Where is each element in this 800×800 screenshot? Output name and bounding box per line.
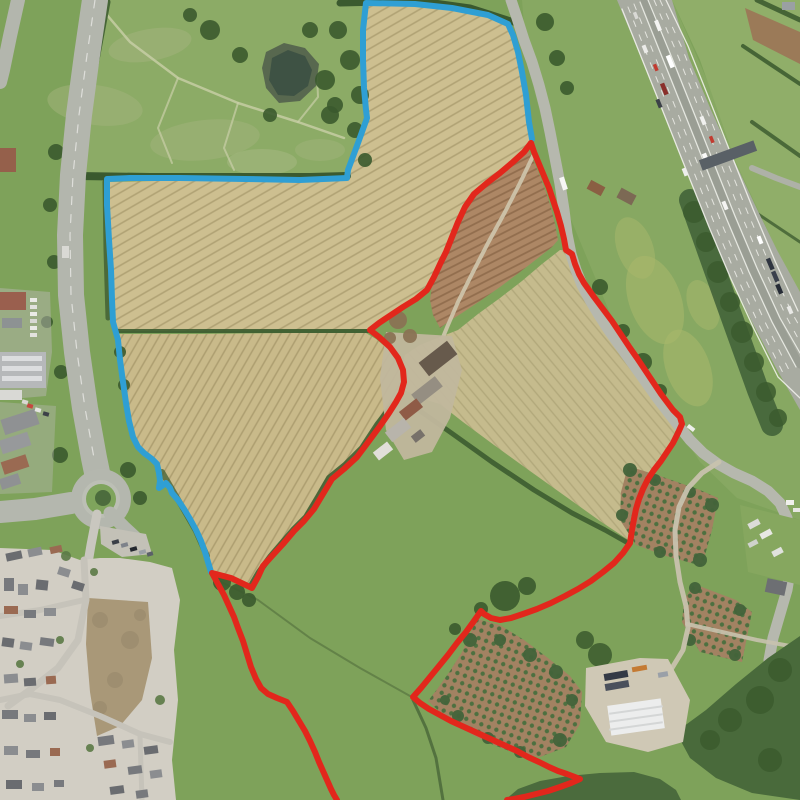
woodland-canopy [768,658,792,682]
commercial-parked-cars [30,312,37,316]
woodland-canopy [576,631,594,649]
tree-clump [183,8,197,22]
woodland-canopy [700,730,720,750]
woodland-canopy [718,708,742,732]
cleared-ground-mottle [121,631,139,649]
orchard-edge-trees [689,582,701,594]
house [4,578,14,591]
commercial-building [0,148,16,172]
orchard-edge-trees [705,498,719,512]
house [24,678,37,687]
tree-clump [242,593,256,607]
commercial-parked-cars [30,326,37,330]
estate-tree [61,551,71,561]
house [24,610,36,618]
house [104,759,117,769]
motorway-tree-canopy [769,409,787,427]
tree-clump [54,365,68,379]
orchard-edge-trees [729,649,741,661]
house [44,712,56,720]
roundabout-arm-west [0,503,71,512]
tree-clump [340,50,360,70]
crossing-refuge [62,246,69,258]
woodland-canopy [746,686,774,714]
commercial-building [2,318,22,328]
cleared-ground-mottle [107,672,123,688]
muck-heap [403,329,417,343]
commercial-roof-stripe [2,366,42,371]
house [4,674,19,684]
tree-clump [120,462,136,478]
park-light-patch [227,149,297,175]
house [44,608,56,616]
house [18,584,28,595]
house [4,606,18,614]
house [20,641,33,651]
house [4,746,18,755]
roundabout-bush [95,490,111,506]
cleared-ground-mottle [134,609,146,621]
orchard-edge-trees [734,604,746,616]
house [50,748,60,756]
commercial-parked-cars [30,305,37,309]
greenhouse [786,500,794,505]
house [122,739,135,749]
orchard-edge-trees [693,553,707,567]
tree-clump [200,20,220,40]
park-light-patch [295,139,345,161]
commercial-parked-cars [30,333,37,337]
tree-clump [43,198,57,212]
estate-tree [86,744,94,752]
house [54,780,64,787]
commercial-roof-stripe [2,376,42,381]
building-top-right [782,2,795,10]
house [24,714,36,722]
screenshot-root [0,0,800,800]
tree-clump [358,153,372,167]
house [136,789,149,799]
tree-clump [133,491,147,505]
house [36,579,49,590]
commercial-building [0,390,22,400]
woodland-canopy [758,748,782,772]
house [1,637,14,648]
commercial-parked-cars [30,319,37,323]
estate-tree [90,568,98,576]
house [150,769,163,779]
commercial-roof-stripe [2,356,42,361]
orchard-edge-trees [553,733,567,747]
tree-clump [263,108,277,122]
orchard-edge-trees [440,695,450,705]
tree-clump [315,70,335,90]
tree-clump [549,50,565,66]
orchard-edge-trees [616,509,628,521]
orchard-edge-trees [549,665,563,679]
tree-clump [52,447,68,463]
house [26,750,40,758]
estate-tree [155,695,165,705]
woodland-canopy [588,643,612,667]
greenhouse [793,508,800,512]
tree-clump [449,623,461,635]
motorway-tree-canopy [744,352,764,372]
orchard-edge-trees [523,648,537,662]
orchard-edge-trees [623,463,637,477]
orchard-edge-trees [654,546,666,558]
orchard-edge-trees [566,694,578,706]
estate-tree [56,636,64,644]
house [6,780,22,789]
cleared-ground-mottle [92,612,108,628]
orchard-edge-trees [494,634,506,646]
house [2,710,18,719]
tree-clump [327,97,343,113]
tree-clump [560,81,574,95]
commercial-parked-cars [30,298,37,302]
motorway-tree-canopy [720,292,740,312]
house [46,676,57,685]
tree-clump [302,22,318,38]
commercial-building [0,292,26,310]
tree-clump [490,581,520,611]
tree-clump [48,144,64,160]
motorway-tree-canopy [756,382,776,402]
tree-clump [536,13,554,31]
estate-tree [16,660,24,668]
tree-clump [518,577,536,595]
house [32,783,44,791]
tree-clump [232,47,248,63]
motorway-tree-canopy [731,321,753,343]
tree-clump [329,21,347,39]
aerial-site-map [0,0,800,800]
